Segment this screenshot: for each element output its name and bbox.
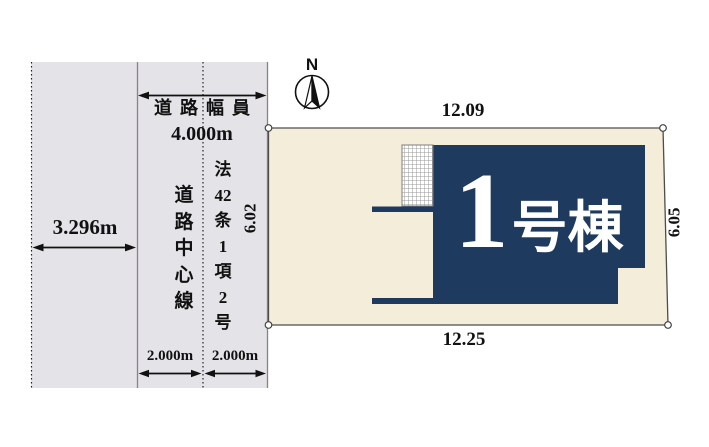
lot-dim-right: 6.05 — [666, 192, 685, 252]
law-article-label: 法42条1項2号 — [207, 157, 239, 336]
entrance-porch-hatch — [402, 145, 433, 206]
compass-icon — [296, 76, 329, 109]
building-label: 1 号棟 — [433, 158, 645, 308]
corner-marker-top-right — [660, 125, 667, 132]
road-width-label: 道路幅員 — [137, 99, 267, 119]
half-width-left-label: 2.000m — [138, 348, 202, 365]
compass-north-label: N — [299, 56, 325, 75]
building-number: 1 — [455, 158, 509, 266]
corner-marker-bottom-right — [665, 322, 672, 329]
lot-dim-left: 6.02 — [242, 188, 261, 248]
half-width-right-label: 2.000m — [203, 348, 267, 365]
corner-marker-bottom-left — [265, 322, 272, 329]
road-center-line-label: 道路中心線 — [170, 183, 198, 316]
lot-dim-bottom: 12.25 — [404, 330, 524, 351]
eave-bar-top — [372, 207, 433, 213]
eave-bar-bottom — [372, 298, 433, 304]
lot-dim-top: 12.09 — [403, 101, 523, 122]
building-suffix: 号棟 — [512, 199, 624, 261]
plot-diagram: N 道路幅員 4.000m 3.296m 道路中心線 法42条1項2号 2.00… — [0, 0, 709, 447]
opposite-side-width-label: 3.296m — [32, 216, 138, 239]
road-width-value: 4.000m — [137, 123, 267, 145]
